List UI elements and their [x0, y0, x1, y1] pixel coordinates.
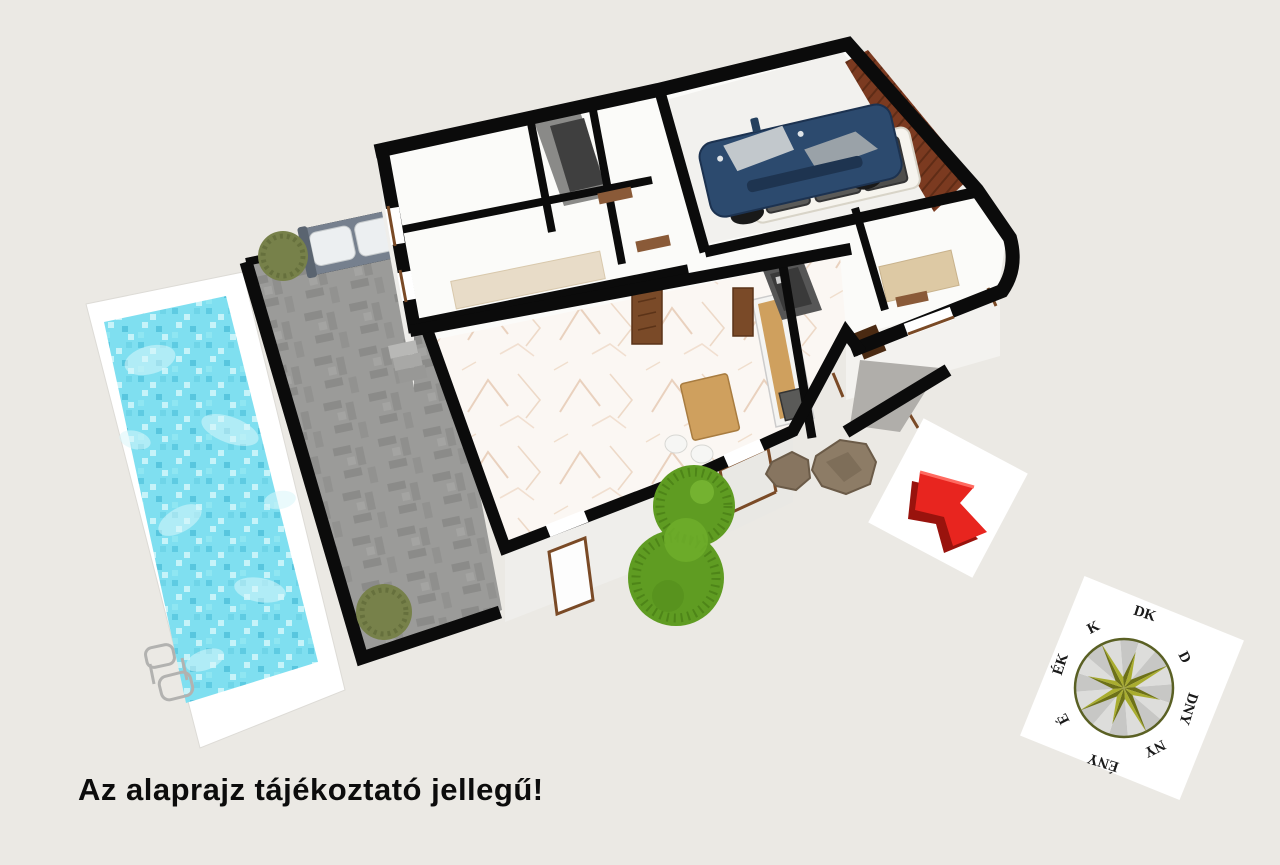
floorplan-canvas: K DK D DNY NY ÉNY É ÉK — [0, 0, 1280, 865]
direction-arrow-marker — [868, 418, 1028, 578]
chair — [691, 445, 713, 463]
hall-door — [733, 288, 753, 336]
bush-bottom — [356, 584, 412, 640]
bush-top — [258, 231, 308, 281]
floorplan-render: K DK D DNY NY ÉNY É ÉK Az alaprajz tájék… — [0, 0, 1280, 865]
disclaimer-text: Az alaprajz tájékoztató jellegű! — [78, 772, 544, 808]
front-window — [549, 538, 593, 614]
chair — [665, 435, 687, 453]
compass-rose: K DK D DNY NY ÉNY É ÉK — [1020, 576, 1244, 800]
living-room-door — [632, 290, 662, 344]
